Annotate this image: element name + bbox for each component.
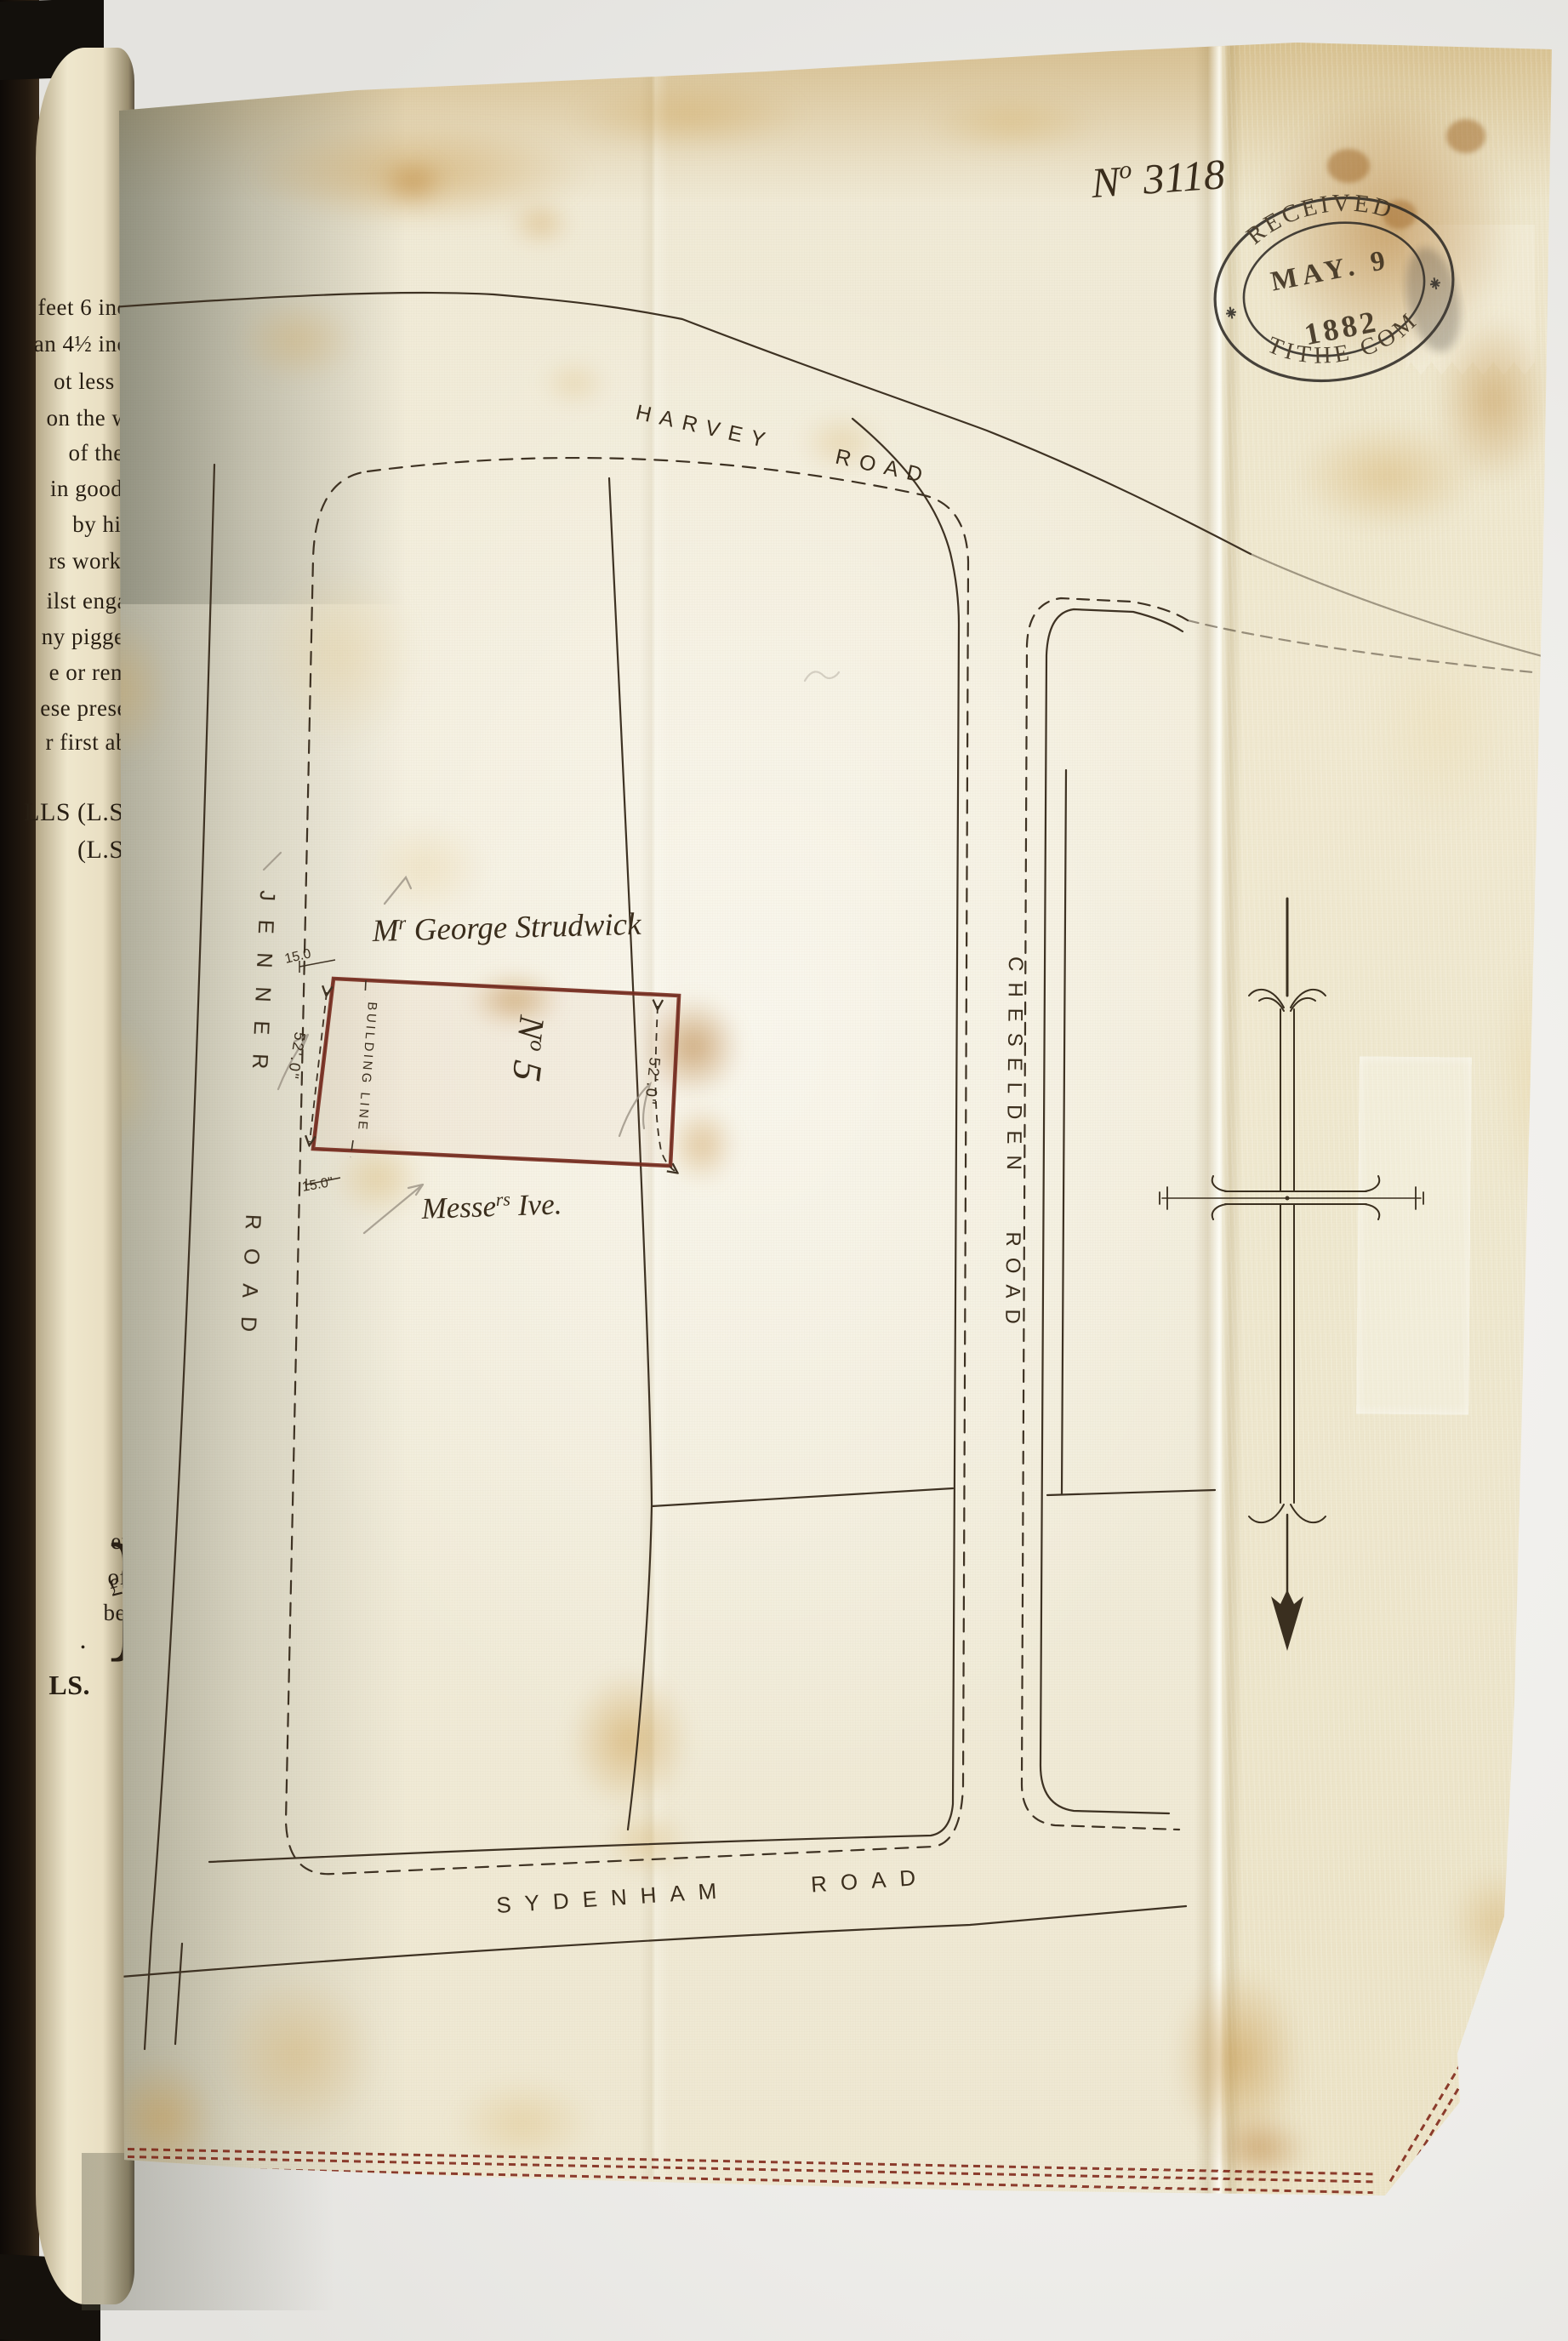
center-crease (640, 51, 669, 2178)
page-signature-fragment: LS. (48, 1670, 90, 1701)
tape-repair (1356, 1056, 1472, 1414)
gutter-shadow-top (117, 77, 407, 604)
scanned-plan-photograph: feet 6 inch an 4½ inch ot less th on the… (0, 0, 1568, 2341)
page-period: . (80, 1624, 88, 1655)
plan-sheet: HARVEY ROAD JENNER ROAD CHESELDEN ROAD S… (0, 0, 1568, 2341)
cast-shadow (82, 2153, 379, 2310)
